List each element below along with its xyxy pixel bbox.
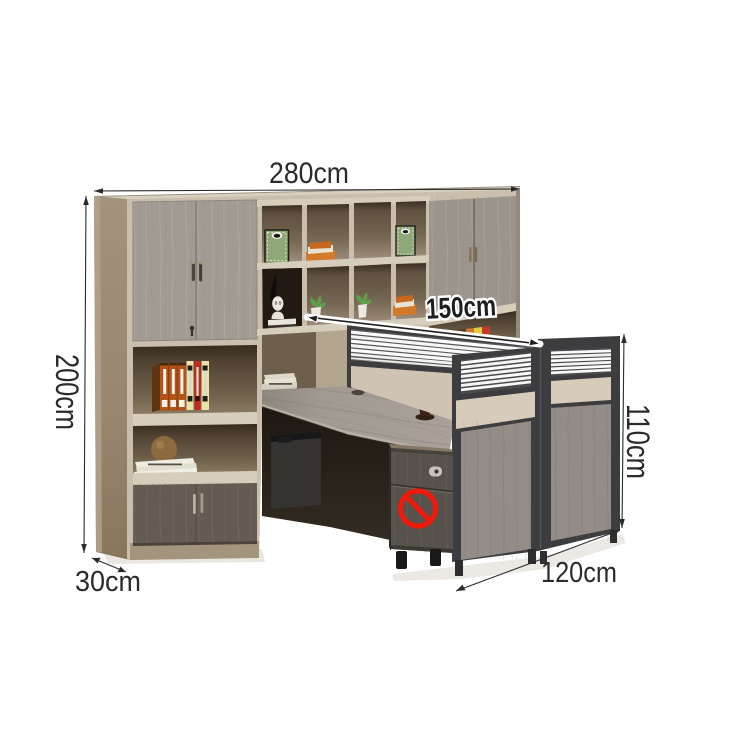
svg-text:110cm: 110cm xyxy=(620,404,656,479)
svg-text:30cm: 30cm xyxy=(75,566,141,598)
svg-text:150cm: 150cm xyxy=(425,290,497,326)
svg-text:200cm: 200cm xyxy=(49,354,85,430)
svg-text:280cm: 280cm xyxy=(269,157,349,190)
svg-text:120cm: 120cm xyxy=(541,557,617,589)
